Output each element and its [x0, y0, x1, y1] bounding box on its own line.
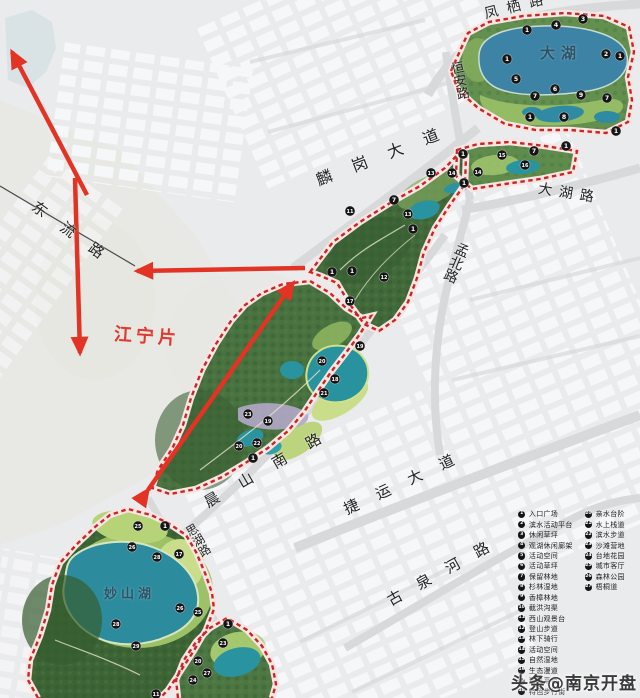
legend-item: 22滨水步道: [585, 530, 625, 540]
legend-label: 森林公园: [596, 572, 625, 582]
legend-badge: 13: [518, 636, 525, 643]
legend-badge: 11: [518, 615, 525, 622]
map-marker-number: 1: [564, 143, 568, 150]
legend-badge: 10: [518, 604, 525, 611]
legend-item: 20亲水台阶: [585, 509, 625, 519]
legend-badge: 25: [585, 563, 592, 570]
legend-item: 21水上栈道: [585, 519, 625, 529]
map-marker-number: 13: [405, 212, 412, 218]
legend-label: 截洪沟渠: [529, 603, 558, 613]
legend-badge: 8: [518, 584, 525, 591]
legend-label: 活动空间: [529, 645, 558, 655]
map-marker-number: 18: [332, 377, 339, 383]
legend-badge: 20: [585, 511, 592, 518]
legend-badge: 15: [518, 657, 525, 664]
legend-badge: 26: [585, 573, 592, 580]
map-marker-number: 23: [245, 412, 252, 418]
map-marker-number: 11: [153, 692, 160, 698]
map-marker-number: 1: [462, 180, 466, 187]
map-marker-number: 7: [605, 95, 609, 102]
legend-badge: 12: [518, 625, 525, 632]
map-marker-number: 20: [319, 359, 326, 365]
legend-item: 12登山步道: [518, 624, 573, 634]
map-marker-number: 9: [579, 92, 583, 99]
map-marker-number: 14: [449, 171, 456, 177]
legend-badge: 14: [518, 646, 525, 653]
legend-label: 活动草坪: [529, 561, 558, 571]
legend-label: 沙滩营地: [596, 541, 625, 551]
legend-item: 23沙滩营地: [585, 540, 625, 550]
map-marker-number: 23: [220, 641, 227, 647]
map-marker-number: 12: [381, 275, 388, 281]
legend-item: 9香樟林地: [518, 593, 573, 603]
map-marker-number: 13: [428, 171, 435, 177]
map-marker-number: 6: [553, 86, 557, 93]
legend-item: 5活动空间: [518, 551, 573, 561]
legend-label: 登山步道: [529, 624, 558, 634]
map-marker-number: 8: [562, 114, 566, 121]
legend-label: 梧桐道: [596, 582, 618, 592]
legend-label: 活动空间: [529, 551, 558, 561]
map-marker-number: 1: [163, 523, 167, 530]
legend-badge: 23: [585, 542, 592, 549]
arrow-to-west: [137, 268, 305, 271]
legend-badge: 22: [585, 531, 592, 538]
map-marker-number: 1: [226, 621, 230, 628]
legend-label: 林下骑行: [529, 634, 558, 644]
map-marker-number: 21: [321, 391, 328, 397]
legend-label: 香樟林地: [529, 593, 558, 603]
legend-item: 2滨水活动平台: [518, 519, 573, 529]
legend-badge: 1: [518, 511, 525, 518]
map-marker-number: 7: [533, 93, 537, 100]
map-marker-number: 1: [528, 114, 532, 121]
legend-badge: 24: [585, 552, 592, 559]
legend-item: 6活动草坪: [518, 561, 573, 571]
map-marker-number: 1: [330, 269, 334, 276]
legend-item: 1入口广场: [518, 509, 573, 519]
legend-label: 入口广场: [529, 509, 558, 519]
map-marker-number: 1: [525, 27, 529, 34]
legend-badge: 9: [518, 594, 525, 601]
map-marker-number: 26: [129, 545, 136, 551]
legend-label: 亲水台阶: [596, 509, 625, 519]
watermark: 头条@南京开盘: [511, 669, 637, 694]
legend-item: 7保留林地: [518, 572, 573, 582]
map-marker-number: 1: [461, 151, 465, 158]
map-marker-number: 7: [392, 197, 396, 204]
legend-label: 观湖休闲廊架: [529, 541, 573, 551]
legend-label: 西山观景台: [529, 614, 566, 624]
legend-label: 城市客厅: [596, 561, 625, 571]
map-marker-number: 7: [532, 148, 536, 155]
map-marker-number: 17: [176, 552, 183, 558]
legend-badge: 7: [518, 573, 525, 580]
legend-item: 26森林公园: [585, 572, 625, 582]
legend-item: 3休闲草坪: [518, 530, 573, 540]
map-marker-number: 1: [350, 268, 354, 275]
map-marker-number: 24: [190, 678, 197, 684]
legend-item: 25城市客厅: [585, 561, 625, 571]
legend-item: 14活动空间: [518, 645, 573, 655]
map-marker-number: 27: [204, 671, 211, 677]
legend-badge: 6: [518, 563, 525, 570]
map-marker-number: 25: [195, 610, 202, 616]
legend-item: 13林下骑行: [518, 634, 573, 644]
map-marker-number: 20: [195, 659, 202, 665]
map-marker-number: 29: [133, 644, 140, 650]
map-marker-number: 22: [254, 441, 261, 447]
planning-map: 1143215769781111571614113141711131121117…: [0, 0, 640, 698]
legend-badge: 21: [585, 521, 592, 528]
map-marker-number: 20: [236, 444, 243, 450]
map-marker-number: 1: [618, 53, 622, 60]
legend-badge: 4: [518, 542, 525, 549]
legend-item: 24台地花园: [585, 551, 625, 561]
legend-item: 8杉林湿地: [518, 582, 573, 592]
legend-label: 滨水步道: [596, 530, 625, 540]
map-marker-number: 1: [251, 455, 255, 462]
map-marker-number: 17: [347, 299, 354, 305]
legend-item: 10截洪沟渠: [518, 603, 573, 613]
map-marker-number: 11: [347, 209, 354, 215]
map-marker-number: 26: [177, 606, 184, 612]
legend-label: 休闲草坪: [529, 530, 558, 540]
map-marker-number: 2: [604, 51, 608, 58]
map-marker-number: 1: [614, 128, 618, 135]
map-marker-number: 4: [554, 22, 559, 29]
legend-item: 11西山观景台: [518, 613, 573, 623]
map-marker-number: 25: [135, 524, 142, 530]
map-marker-number: 19: [265, 419, 272, 425]
map-marker-number: 3: [581, 16, 585, 23]
legend-label: 杉林湿地: [529, 582, 558, 592]
legend-item: 15自然湿地: [518, 655, 573, 665]
legend-item: 27梧桐道: [585, 582, 625, 592]
map-marker-number: 14: [475, 170, 482, 176]
legend-badge: 2: [518, 521, 525, 528]
legend-label: 水上栈道: [596, 520, 625, 530]
legend-label: 滨水活动平台: [529, 520, 573, 530]
map-marker-number: 15: [499, 153, 506, 159]
legend-item: 4观湖休闲廊架: [518, 540, 573, 550]
map-marker-number: 28: [154, 555, 161, 561]
map-marker-number: 5: [514, 76, 518, 83]
legend-label: 自然湿地: [529, 655, 558, 665]
legend-badge: 3: [518, 531, 525, 538]
map-marker-number: 1: [411, 226, 415, 233]
map-marker-number: 16: [522, 163, 529, 169]
map-marker-number: 19: [357, 344, 364, 350]
legend-badge: 27: [585, 584, 592, 591]
map-marker-number: 1: [505, 56, 509, 63]
legend-badge: 5: [518, 552, 525, 559]
map-marker-number: 28: [113, 622, 120, 628]
legend-label: 保留林地: [529, 572, 558, 582]
legend-label: 台地花园: [596, 551, 625, 561]
